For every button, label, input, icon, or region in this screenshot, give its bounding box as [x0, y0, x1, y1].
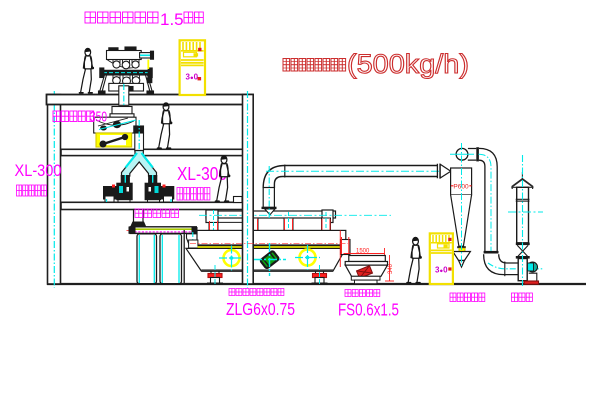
svg-text:350: 350 — [90, 109, 107, 126]
svg-text:FS0.6x1.5: FS0.6x1.5 — [338, 300, 399, 320]
svg-text:1.5: 1.5 — [160, 10, 184, 29]
svg-text:XL-300: XL-300 — [15, 161, 62, 180]
svg-text:1500: 1500 — [356, 249, 370, 255]
svg-text:340: 340 — [388, 263, 394, 274]
svg-text:ZLG6x0.75: ZLG6x0.75 — [226, 299, 295, 319]
svg-text:(500kg/h): (500kg/h) — [347, 49, 469, 79]
